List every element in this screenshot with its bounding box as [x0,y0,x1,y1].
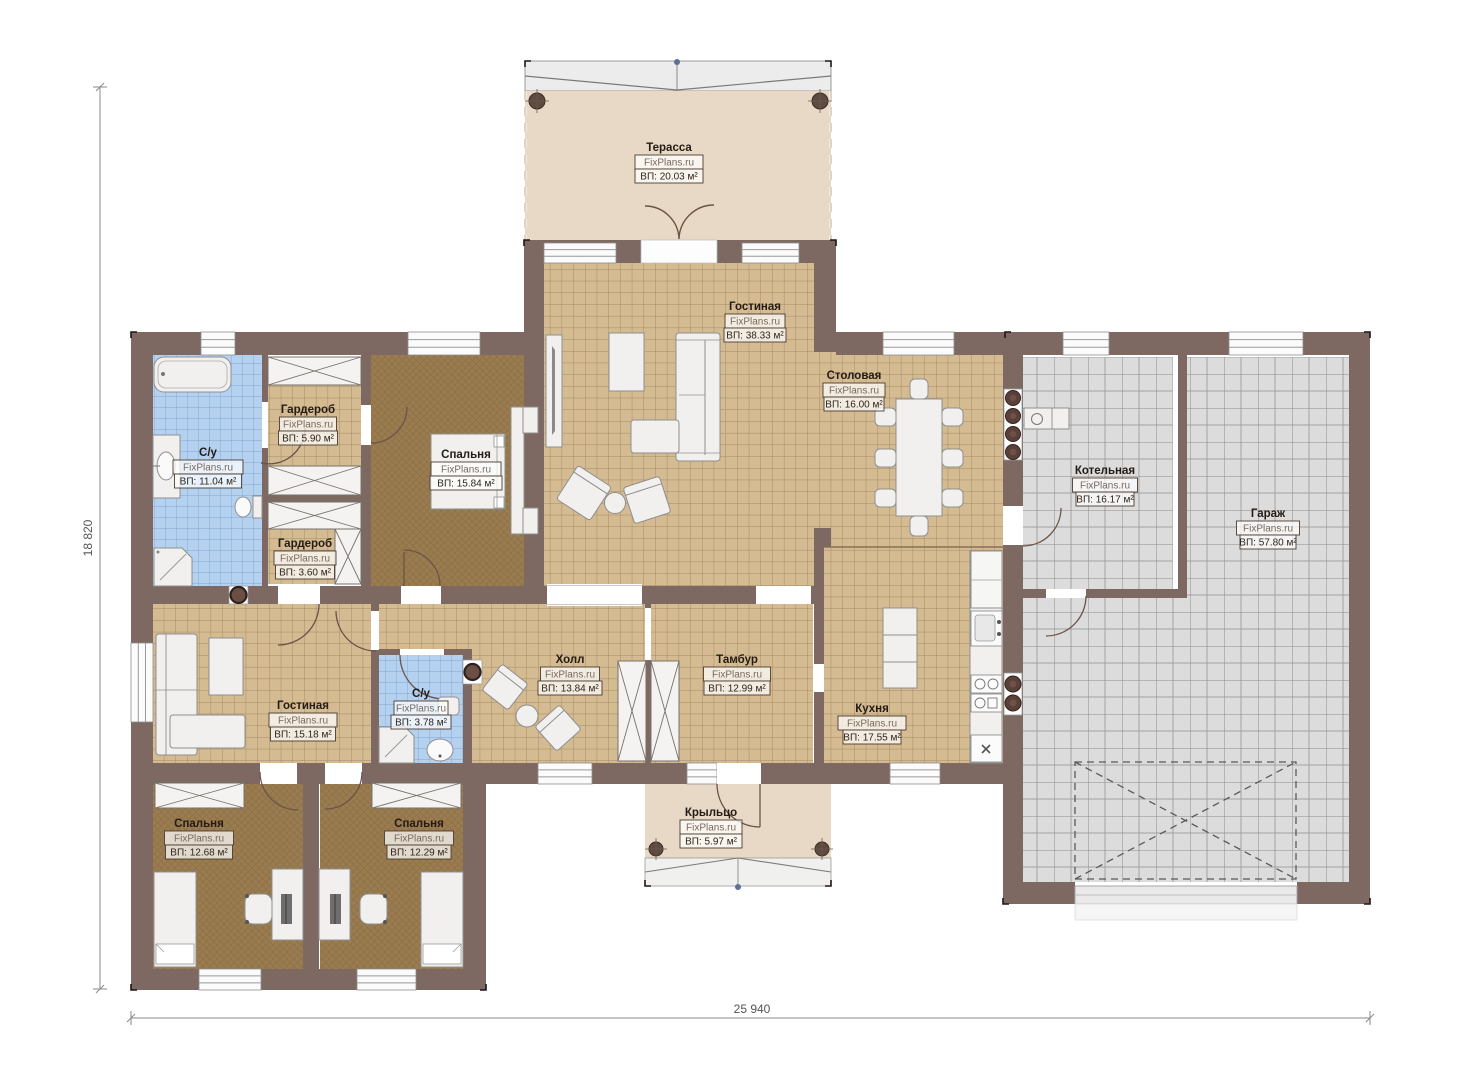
svg-text:ВП: 57.80 м²: ВП: 57.80 м² [1239,538,1297,549]
svg-text:FixPlans.ru: FixPlans.ru [394,834,444,845]
svg-text:FixPlans.ru: FixPlans.ru [730,317,780,328]
svg-text:ВП: 16.00 м²: ВП: 16.00 м² [825,400,883,411]
svg-text:ВП: 11.04 м²: ВП: 11.04 м² [180,477,237,488]
svg-text:Гостиная: Гостиная [277,700,329,712]
svg-text:ВП: 16.17 м²: ВП: 16.17 м² [1076,495,1134,506]
svg-text:FixPlans.ru: FixPlans.ru [183,463,233,474]
svg-text:Крыльцо: Крыльцо [685,807,737,819]
svg-text:ВП: 38.33 м²: ВП: 38.33 м² [726,331,784,342]
svg-text:Кухня: Кухня [855,703,889,715]
svg-text:Гардероб: Гардероб [278,538,332,550]
svg-text:FixPlans.ru: FixPlans.ru [644,158,694,169]
svg-text:Столовая: Столовая [827,370,882,382]
svg-text:FixPlans.ru: FixPlans.ru [278,716,328,727]
svg-text:FixPlans.ru: FixPlans.ru [280,554,330,565]
svg-text:Тамбур: Тамбур [716,654,758,666]
svg-text:FixPlans.ru: FixPlans.ru [829,386,879,397]
svg-text:FixPlans.ru: FixPlans.ru [686,823,736,834]
svg-text:С/у: С/у [199,447,218,459]
svg-text:ВП: 20.03 м²: ВП: 20.03 м² [640,172,698,183]
svg-text:FixPlans.ru: FixPlans.ru [545,670,595,681]
svg-text:Холл: Холл [556,654,585,666]
svg-text:18 820: 18 820 [81,519,95,556]
svg-text:FixPlans.ru: FixPlans.ru [1243,524,1293,535]
svg-text:ВП: 17.55 м²: ВП: 17.55 м² [843,733,901,744]
svg-text:ВП: 15.84 м²: ВП: 15.84 м² [437,479,495,490]
svg-text:Спальня: Спальня [174,818,224,830]
svg-text:ВП: 12.99 м²: ВП: 12.99 м² [708,684,766,695]
svg-text:ВП: 12.68 м²: ВП: 12.68 м² [170,848,228,859]
svg-text:FixPlans.ru: FixPlans.ru [441,465,491,476]
svg-text:FixPlans.ru: FixPlans.ru [847,719,897,730]
svg-text:FixPlans.ru: FixPlans.ru [174,834,224,845]
svg-text:FixPlans.ru: FixPlans.ru [283,420,333,431]
svg-text:Гостиная: Гостиная [729,301,781,313]
svg-text:ВП: 3.60 м²: ВП: 3.60 м² [279,568,332,579]
svg-text:Гараж: Гараж [1251,508,1286,520]
svg-text:С/у: С/у [412,688,431,700]
svg-text:Терасса: Терасса [646,142,692,154]
svg-text:ВП: 12.29 м²: ВП: 12.29 м² [390,848,448,859]
svg-text:ВП: 13.84 м²: ВП: 13.84 м² [541,684,599,695]
svg-text:ВП: 3.78 м²: ВП: 3.78 м² [395,718,448,729]
svg-text:Котельная: Котельная [1075,465,1135,477]
svg-text:25 940: 25 940 [734,1002,771,1016]
svg-text:ВП: 5.97 м²: ВП: 5.97 м² [685,837,738,848]
svg-text:Гардероб: Гардероб [281,404,335,416]
svg-text:ВП: 15.18 м²: ВП: 15.18 м² [274,730,332,741]
svg-text:FixPlans.ru: FixPlans.ru [1080,481,1130,492]
svg-text:FixPlans.ru: FixPlans.ru [396,704,446,715]
svg-text:Спальня: Спальня [441,449,491,461]
svg-text:Спальня: Спальня [394,818,444,830]
svg-text:ВП: 5.90 м²: ВП: 5.90 м² [282,434,335,445]
svg-text:FixPlans.ru: FixPlans.ru [712,670,762,681]
